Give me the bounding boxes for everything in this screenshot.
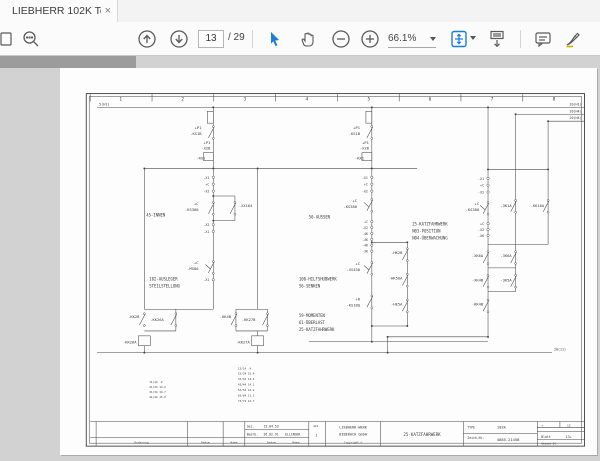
schematic-label: Name [230, 441, 237, 445]
schematic-label: 23/24 15.4 [238, 372, 255, 376]
terminal-circle [371, 190, 373, 192]
schematic-label: Copyright © [344, 441, 363, 445]
pdf-page: 123456785(H1)20(H1)20(H4)20(H4)20(11)+P1… [60, 68, 597, 455]
schematic-label: -RX1 [355, 157, 364, 161]
terminal-circle [212, 190, 214, 192]
schematic-label: -X2B [201, 147, 211, 151]
junction-dot [406, 241, 408, 243]
schematic-label: -X1 [362, 176, 368, 180]
schematic-label: 1 [316, 433, 318, 437]
schematic-label: -KK27A [236, 341, 250, 345]
acrobat-window: { "tab": { "title": "LIEBHERR 102K To...… [0, 0, 600, 461]
schematic-label: 43/44 14.1 [238, 383, 255, 387]
contact-terminal [371, 273, 373, 275]
schematic-label: -KS1BQ [347, 303, 361, 307]
schematic-label: 13/14 .4 [238, 366, 252, 370]
terminal-circle [212, 183, 214, 185]
schematic-label: +C [475, 202, 480, 206]
schematic-label: Änderung [134, 440, 148, 445]
contact-terminal [212, 137, 214, 139]
terminal-circle [371, 176, 373, 178]
junction-dot [371, 325, 373, 327]
schematic-label: +P1 [362, 141, 369, 145]
schematic-label: Datum [267, 441, 276, 445]
schematic-label: 20(H4) [570, 109, 582, 113]
contact-terminal [487, 286, 489, 288]
page-number-input[interactable]: 13 [198, 30, 224, 48]
schematic-label: TYPE [467, 425, 475, 429]
terminal-circle [212, 223, 214, 225]
schematic-label: 20(H1) [570, 102, 582, 106]
junction-dot [371, 167, 373, 169]
fit-page-chevron-icon[interactable] [470, 36, 476, 40]
contact-terminal [487, 213, 489, 215]
schematic-label: 25-KATZFAHRWERK [299, 327, 335, 332]
junction-dot [515, 113, 517, 115]
schematic-label: 20(H4) [570, 116, 582, 120]
terminal-circle [371, 226, 373, 228]
schematic-label: -KS380 [466, 208, 480, 212]
next-page-icon[interactable] [168, 28, 190, 50]
terminal-circle [212, 176, 214, 178]
schematic-label: -HK5UA [389, 277, 403, 281]
schematic-label: -X1 [203, 278, 209, 282]
contact-terminal [515, 211, 517, 213]
column-number: 6 [429, 96, 432, 102]
page-total-label: / 29 [228, 32, 245, 43]
fuse-symbol [366, 111, 372, 123]
schematic-label: -KK26A [123, 341, 137, 345]
schematic-label: -KS380 [344, 205, 358, 209]
schematic-label: Gesamt-Bl. [541, 442, 558, 446]
schematic-label: 73/74 14.7 [238, 399, 255, 403]
schematic-label: Zeich-Nr. [467, 436, 484, 440]
contact-terminal [371, 307, 373, 309]
schematic-label: -3K5A [500, 279, 512, 283]
schematic-label: ELLINGER [285, 432, 300, 436]
hand-tool-icon[interactable] [296, 28, 318, 50]
schematic-label: 50-AUSSEN [309, 215, 331, 220]
schematic-label: -KS1B [190, 132, 202, 136]
schematic-label: -RX1 [196, 157, 205, 161]
contact-terminal [487, 311, 489, 313]
schematic-label: +P1 [353, 126, 360, 130]
schematic-label: -X2 [203, 190, 209, 194]
terminal-circle [487, 228, 489, 230]
contact-terminal [487, 262, 489, 264]
select-tool-icon[interactable] [264, 28, 286, 50]
junction-dot [143, 167, 145, 169]
schematic-label: -3K1A [500, 204, 512, 208]
schematic-label: 102-AUSLEGER [149, 277, 178, 282]
junction-dot [387, 336, 389, 338]
schematic-label: -X2B [360, 147, 370, 151]
schematic-label: -KS1B [349, 132, 361, 136]
schematic-label: +C [364, 183, 368, 187]
schematic-label: Datum [201, 441, 210, 445]
schematic-label: -X2 [478, 228, 484, 232]
junction-dot [212, 167, 214, 169]
contact-terminal [406, 285, 408, 287]
tab-bar: LIEBHERR 102K To... × [0, 0, 600, 23]
schematic-label: 33/34 14.4 [238, 377, 255, 381]
junction-dot [487, 336, 489, 338]
actuator-arrow [364, 265, 369, 269]
terminal-circle [487, 234, 489, 236]
schematic-label: BIBERACH GmbH [339, 432, 367, 436]
contact-terminal [371, 137, 373, 139]
schematic-label: +P1 [204, 141, 211, 145]
schematic-label: -XX164 [239, 204, 253, 208]
terminal-circle [487, 184, 489, 186]
schematic-drawing: 123456785(H1)20(H1)20(H4)20(H4)20(11)+P1… [60, 68, 597, 455]
schematic-label: -XS450 [347, 268, 360, 272]
junction-dot [143, 352, 145, 354]
schematic-label: -HK2B [391, 251, 403, 255]
schematic-label: STEILSTELLUNG [149, 284, 180, 289]
junction-dot [371, 341, 373, 343]
schematic-label: 59-MOMENTEN [299, 313, 326, 318]
toolbar-divider [520, 30, 521, 48]
schematic-label: -4K [362, 238, 368, 242]
schematic-label: +P1 [195, 126, 202, 130]
schematic-label: +C [356, 262, 361, 266]
schematic-label: -4K [362, 232, 368, 236]
schematic-label: +C [205, 183, 209, 187]
schematic-label: -3K [362, 250, 368, 254]
contact-blade [139, 314, 145, 325]
junction-dot [371, 241, 373, 243]
terminal-circle [371, 238, 373, 240]
schematic-label: -KK4B [220, 315, 232, 319]
column-number: 2 [181, 96, 184, 102]
schematic-label: -KK26A [150, 318, 164, 322]
zoom-in-icon[interactable] [359, 28, 381, 50]
toolbar-divider [252, 30, 253, 48]
contact-terminal [212, 272, 214, 274]
contact-terminal [234, 213, 236, 215]
actuator-arrow [364, 202, 369, 206]
schematic-label: -X2 [362, 190, 368, 194]
contact-terminal [371, 210, 373, 212]
marquee-zoom-icon[interactable] [20, 28, 42, 50]
contact-terminal [175, 325, 177, 327]
relay-coil [252, 336, 264, 346]
schematic-label: 61-ÜBERLAST [299, 320, 326, 325]
contact-terminal [406, 260, 408, 262]
schematic-label: -X1 [203, 230, 209, 234]
contact-terminal [143, 325, 145, 327]
schematic-label: -HE5A [391, 302, 403, 306]
terminal-circle [212, 279, 214, 281]
schematic-label: +R [356, 297, 361, 301]
schematic-label: -X1 [203, 176, 209, 180]
schematic-label: 25-KATZFAHRWERK [403, 432, 441, 437]
junction-dot [406, 325, 408, 327]
terminal-circle [371, 183, 373, 185]
junction-dot [487, 106, 489, 108]
junction-dot [487, 168, 489, 170]
schematic-label: +C [194, 261, 199, 265]
schematic-label: +C [353, 199, 358, 203]
schematic-label: + [541, 423, 543, 427]
previous-page-icon[interactable] [136, 28, 158, 50]
actuator-arrow [480, 205, 485, 209]
contact-terminal [406, 311, 408, 313]
relay-coil [138, 336, 150, 346]
schematic-label: 26.02.91 [264, 432, 279, 436]
schematic-label: -KK27B [242, 318, 256, 322]
schematic-label: Gez. [247, 424, 255, 428]
terminal-circle [371, 220, 373, 222]
junction-dot [387, 352, 389, 354]
junction-dot [212, 220, 214, 222]
schematic-label: 20(11) [554, 348, 566, 352]
schematic-label: N04-ÜBERWACHUNG [412, 235, 448, 240]
schematic-label: Abt. [313, 424, 320, 428]
fill-sign-pen-icon[interactable] [562, 28, 584, 50]
tab-title: LIEBHERR 102K To... [12, 5, 101, 17]
schematic-label: 15.04.53 [264, 424, 279, 428]
contact-terminal [515, 286, 517, 288]
fuse-symbol [207, 111, 213, 123]
schematic-label: +C [480, 184, 484, 188]
schematic-label: Name [292, 441, 299, 445]
schematic-label: Bearb. [247, 432, 258, 436]
column-number: 1 [119, 96, 122, 102]
junction-dot [212, 195, 214, 197]
schematic-label: +C [480, 222, 484, 226]
scrolling-mode-icon[interactable] [486, 28, 508, 50]
zoom-level-value: 66.1% [388, 33, 416, 44]
schematic-label: -XK4B [472, 279, 484, 283]
scroll-strip [0, 56, 136, 68]
schematic-label: 45-INNEN [146, 213, 166, 218]
comment-icon[interactable] [532, 28, 554, 50]
export-icon[interactable] [0, 28, 14, 50]
junction-dot [257, 352, 259, 354]
terminal-circle [212, 230, 214, 232]
schematic-label: 5(H1) [99, 102, 110, 106]
zoom-level-dropdown[interactable]: 66.1% [388, 30, 436, 48]
schematic-label: 4885-2145B [497, 438, 520, 442]
schematic-label: -XK6A [472, 254, 484, 258]
schematic-label: 100-HILFSHUBWERK [299, 277, 337, 282]
schematic-label: 13+ [566, 435, 572, 439]
schematic-label: -MS80 [187, 267, 198, 271]
terminal-circle [487, 222, 489, 224]
schematic-label: 25-KATZFAHRWERK [412, 222, 448, 227]
junction-dot [547, 120, 549, 122]
schematic-label: 31/34 14.7 [149, 390, 166, 394]
schematic-label: 12 [567, 423, 571, 427]
main-toolbar: 13 / 29 66.1% [0, 22, 600, 56]
schematic-label: -X2 [478, 191, 484, 195]
schematic-label: 11/14 .2 [149, 380, 163, 384]
schematic-label: Blatt [541, 435, 551, 439]
junction-dot [212, 106, 214, 108]
terminal-circle [371, 232, 373, 234]
column-number: 4 [305, 96, 308, 102]
document-tab[interactable]: LIEBHERR 102K To... × [0, 0, 118, 22]
schematic-label: -KK16A [531, 204, 545, 208]
zoom-out-icon[interactable] [330, 28, 352, 50]
junction-dot [547, 168, 549, 170]
fit-page-icon[interactable] [448, 28, 470, 50]
schematic-label: +C [194, 202, 199, 206]
junction-dot [371, 106, 373, 108]
terminal-circle [487, 191, 489, 193]
schematic-label: 53/54 14.2 [238, 388, 255, 392]
schematic-label: -X6 [478, 234, 484, 238]
schematic-label: -KK4B [472, 302, 484, 306]
schematic-label: -X1 [478, 177, 484, 181]
schematic-label: 21/24 14.2 [149, 385, 166, 389]
chevron-down-icon [430, 37, 436, 41]
terminal-circle [371, 244, 373, 246]
schematic-label: -X2 [362, 226, 368, 230]
column-number: 7 [491, 96, 494, 102]
actuator-arrow [205, 264, 210, 268]
schematic-label: 41/44 15.2 [149, 395, 166, 399]
contact-terminal [266, 325, 268, 327]
schematic-label: -3K6A [500, 254, 512, 258]
column-number: 5 [368, 96, 371, 102]
junction-dot [257, 167, 259, 169]
schematic-label: -4K [362, 244, 368, 248]
contact-terminal [515, 262, 517, 264]
contact-terminal [212, 213, 214, 215]
terminal-circle [487, 177, 489, 179]
schematic-label: 63/64 11.2 [238, 393, 255, 397]
schematic-label: -KK2B [128, 315, 140, 319]
column-number: 8 [553, 96, 556, 102]
schematic-label: 102K [497, 425, 507, 429]
schematic-label: LIEBHERR-WERK [339, 425, 368, 429]
contact-terminal [547, 211, 549, 213]
column-number: 3 [243, 96, 246, 102]
contact-terminal [235, 325, 237, 327]
schematic-label: -X2 [203, 223, 209, 227]
schematic-label: N03-POSITION [412, 228, 441, 233]
document-canvas[interactable]: 123456785(H1)20(H1)20(H4)20(H4)20(11)+P1… [0, 56, 600, 461]
terminal-circle [371, 250, 373, 252]
schematic-label: +C [364, 220, 368, 224]
schematic-label: -KS300 [185, 208, 199, 212]
schematic-label: 56-SENKEN [299, 284, 321, 289]
tab-close-icon[interactable]: × [105, 5, 111, 17]
